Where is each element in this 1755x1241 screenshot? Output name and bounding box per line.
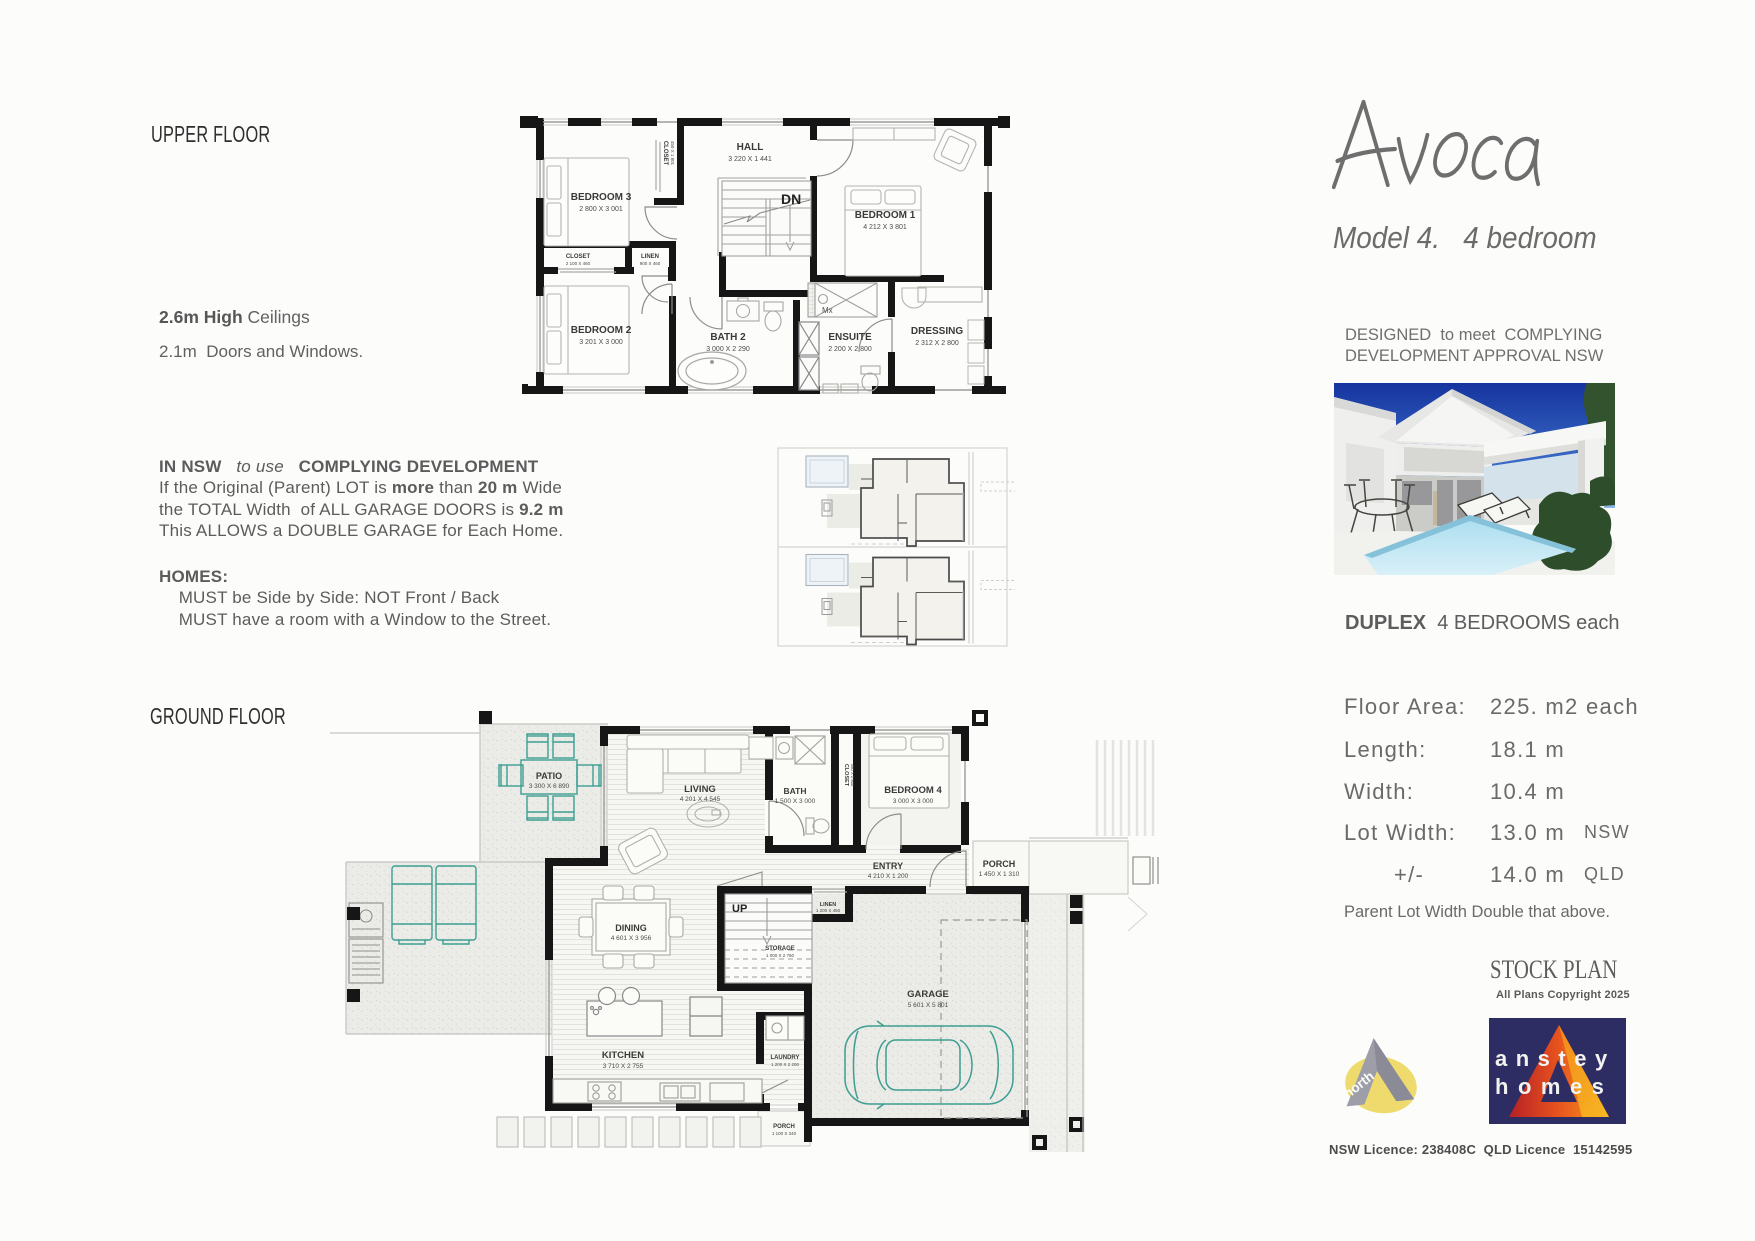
svg-text:DINING: DINING — [615, 923, 647, 933]
svg-text:BEDROOM 1: BEDROOM 1 — [855, 210, 916, 221]
svg-text:3 220 X 1 441: 3 220 X 1 441 — [728, 156, 772, 163]
svg-text:3 201 X 3 000: 3 201 X 3 000 — [579, 339, 623, 346]
svg-text:homes: homes — [1495, 1074, 1613, 1099]
svg-text:2 200 X 2 800: 2 200 X 2 800 — [828, 346, 872, 353]
svg-text:anstey: anstey — [1495, 1046, 1616, 1071]
svg-text:LIVING: LIVING — [684, 784, 716, 795]
svg-text:1 500 X 3 000: 1 500 X 3 000 — [775, 798, 816, 805]
svg-text:1 000 X 2 760: 1 000 X 2 760 — [766, 953, 795, 958]
svg-text:BEDROOM 3: BEDROOM 3 — [571, 192, 632, 203]
svg-text:3 300 X 6 890: 3 300 X 6 890 — [529, 783, 570, 790]
svg-text:CLOSET: CLOSET — [566, 254, 591, 260]
svg-text:LINEN: LINEN — [641, 254, 659, 260]
svg-text:1 100 X 340: 1 100 X 340 — [772, 1131, 797, 1136]
svg-text:UP: UP — [732, 903, 747, 915]
svg-text:HALL: HALL — [737, 142, 764, 153]
svg-text:3 000 X 3 000: 3 000 X 3 000 — [893, 798, 934, 805]
svg-text:ENSUITE: ENSUITE — [828, 332, 872, 343]
svg-text:BEDROOM 4: BEDROOM 4 — [884, 785, 942, 796]
svg-text:4 212 X 3 801: 4 212 X 3 801 — [863, 224, 907, 231]
svg-text:4 201 X 4 545: 4 201 X 4 545 — [680, 796, 721, 803]
svg-text:ENTRY: ENTRY — [873, 861, 903, 871]
svg-text:PATIO: PATIO — [536, 771, 562, 781]
svg-text:450 X 1 801: 450 X 1 801 — [670, 141, 675, 166]
svg-text:450 X 2 500: 450 X 2 500 — [850, 764, 855, 787]
svg-text:Mx: Mx — [822, 306, 833, 315]
svg-text:3 710 X 2 755: 3 710 X 2 755 — [603, 1063, 644, 1070]
svg-text:2 800 X 3 001: 2 800 X 3 001 — [579, 206, 623, 213]
svg-text:1 200 X 2 200: 1 200 X 2 200 — [771, 1062, 800, 1067]
svg-text:CLOSET: CLOSET — [843, 764, 849, 787]
svg-text:KITCHEN: KITCHEN — [602, 1050, 644, 1061]
svg-text:BATH 2: BATH 2 — [710, 332, 746, 343]
svg-text:4 210 X 1 200: 4 210 X 1 200 — [868, 873, 909, 880]
svg-text:1 450 X 1 310: 1 450 X 1 310 — [979, 871, 1020, 878]
svg-text:900 X 460: 900 X 460 — [640, 261, 661, 266]
svg-text:3 000 X 2 290: 3 000 X 2 290 — [706, 346, 750, 353]
svg-text:DN: DN — [781, 191, 801, 207]
svg-text:2 100 X 460: 2 100 X 460 — [566, 261, 591, 266]
svg-text:4 601 X 3 956: 4 601 X 3 956 — [611, 935, 652, 942]
svg-text:5 601 X 5 801: 5 601 X 5 801 — [908, 1002, 949, 1009]
svg-text:STORAGE: STORAGE — [765, 946, 795, 952]
svg-text:DRESSING: DRESSING — [911, 326, 963, 337]
svg-text:2 312 X 2 800: 2 312 X 2 800 — [915, 340, 959, 347]
svg-text:PORCH: PORCH — [773, 1124, 795, 1130]
svg-text:CLOSET: CLOSET — [662, 141, 668, 166]
svg-text:BATH: BATH — [784, 786, 807, 796]
svg-text:PORCH: PORCH — [983, 859, 1016, 869]
svg-text:1 200 X 450: 1 200 X 450 — [816, 908, 841, 913]
svg-text:BEDROOM 2: BEDROOM 2 — [571, 325, 632, 336]
svg-text:GARAGE: GARAGE — [907, 989, 949, 1000]
svg-text:LAUNDRY: LAUNDRY — [770, 1055, 799, 1061]
